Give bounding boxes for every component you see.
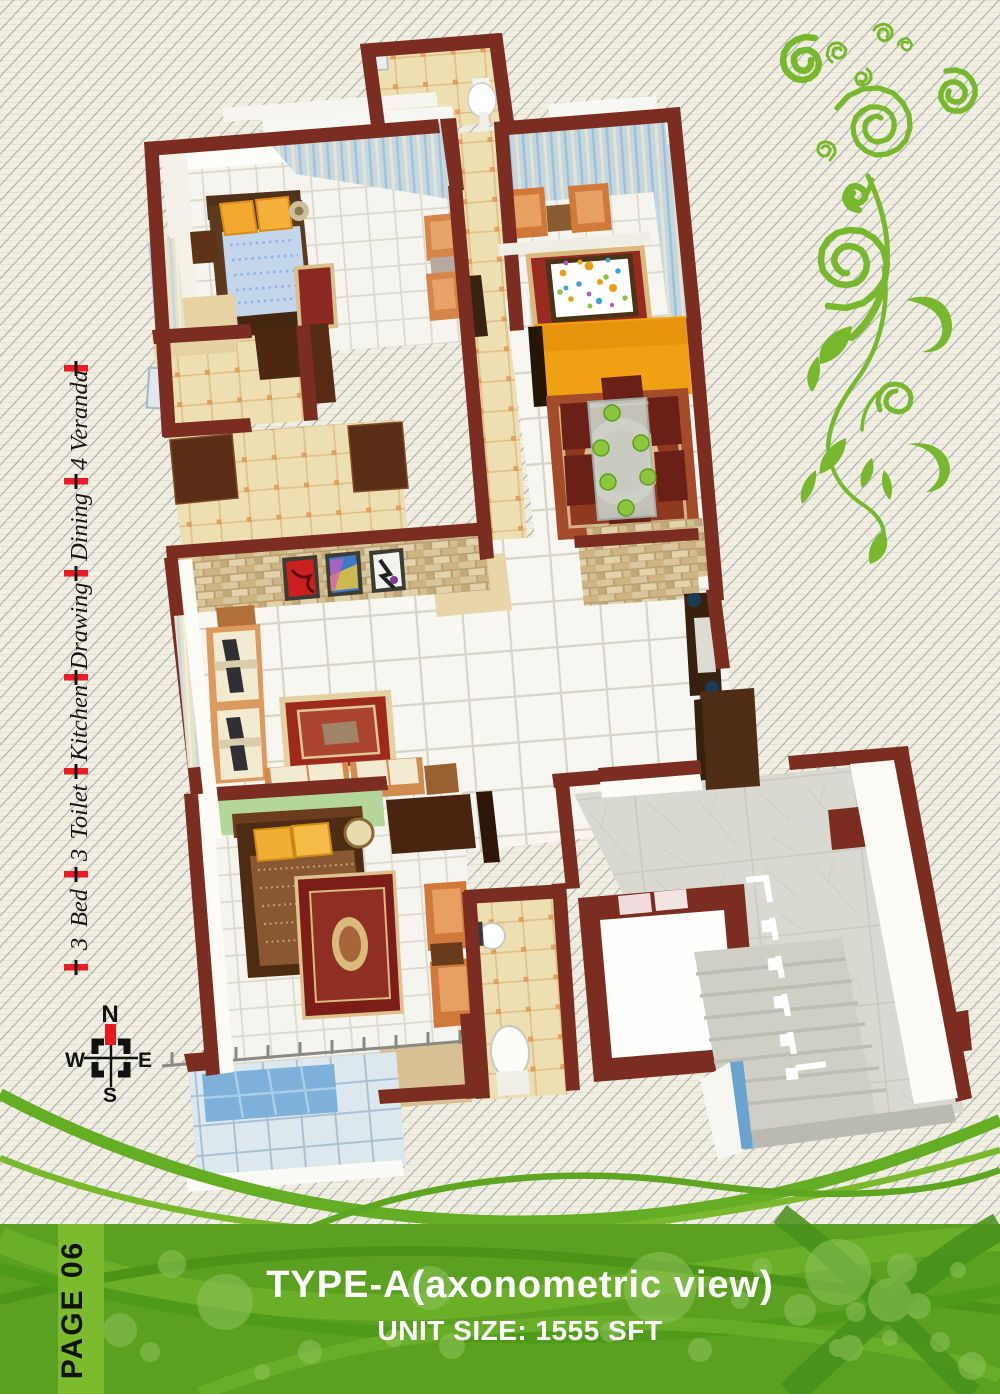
svg-text:E: E xyxy=(138,1049,152,1072)
svg-text:Dining: Dining xyxy=(66,493,93,562)
svg-text:Toilet: Toilet xyxy=(66,783,93,839)
svg-text:PAGE 06: PAGE 06 xyxy=(56,1241,89,1380)
svg-text:UNIT SIZE: 1555 SFT: UNIT SIZE: 1555 SFT xyxy=(378,1315,663,1346)
svg-text:Bed: Bed xyxy=(66,888,93,927)
svg-text:3: 3 xyxy=(66,938,93,951)
svg-text:4: 4 xyxy=(66,458,93,470)
svg-text:Veranda: Veranda xyxy=(66,370,93,452)
svg-text:TYPE-A(axonometric view): TYPE-A(axonometric view) xyxy=(266,1264,774,1306)
svg-text:Kitchen: Kitchen xyxy=(66,685,93,762)
svg-text:Drawing: Drawing xyxy=(66,582,93,670)
svg-text:N: N xyxy=(101,1001,118,1028)
svg-text:S: S xyxy=(103,1084,117,1107)
svg-text:W: W xyxy=(65,1049,85,1072)
svg-text:3: 3 xyxy=(66,849,93,862)
